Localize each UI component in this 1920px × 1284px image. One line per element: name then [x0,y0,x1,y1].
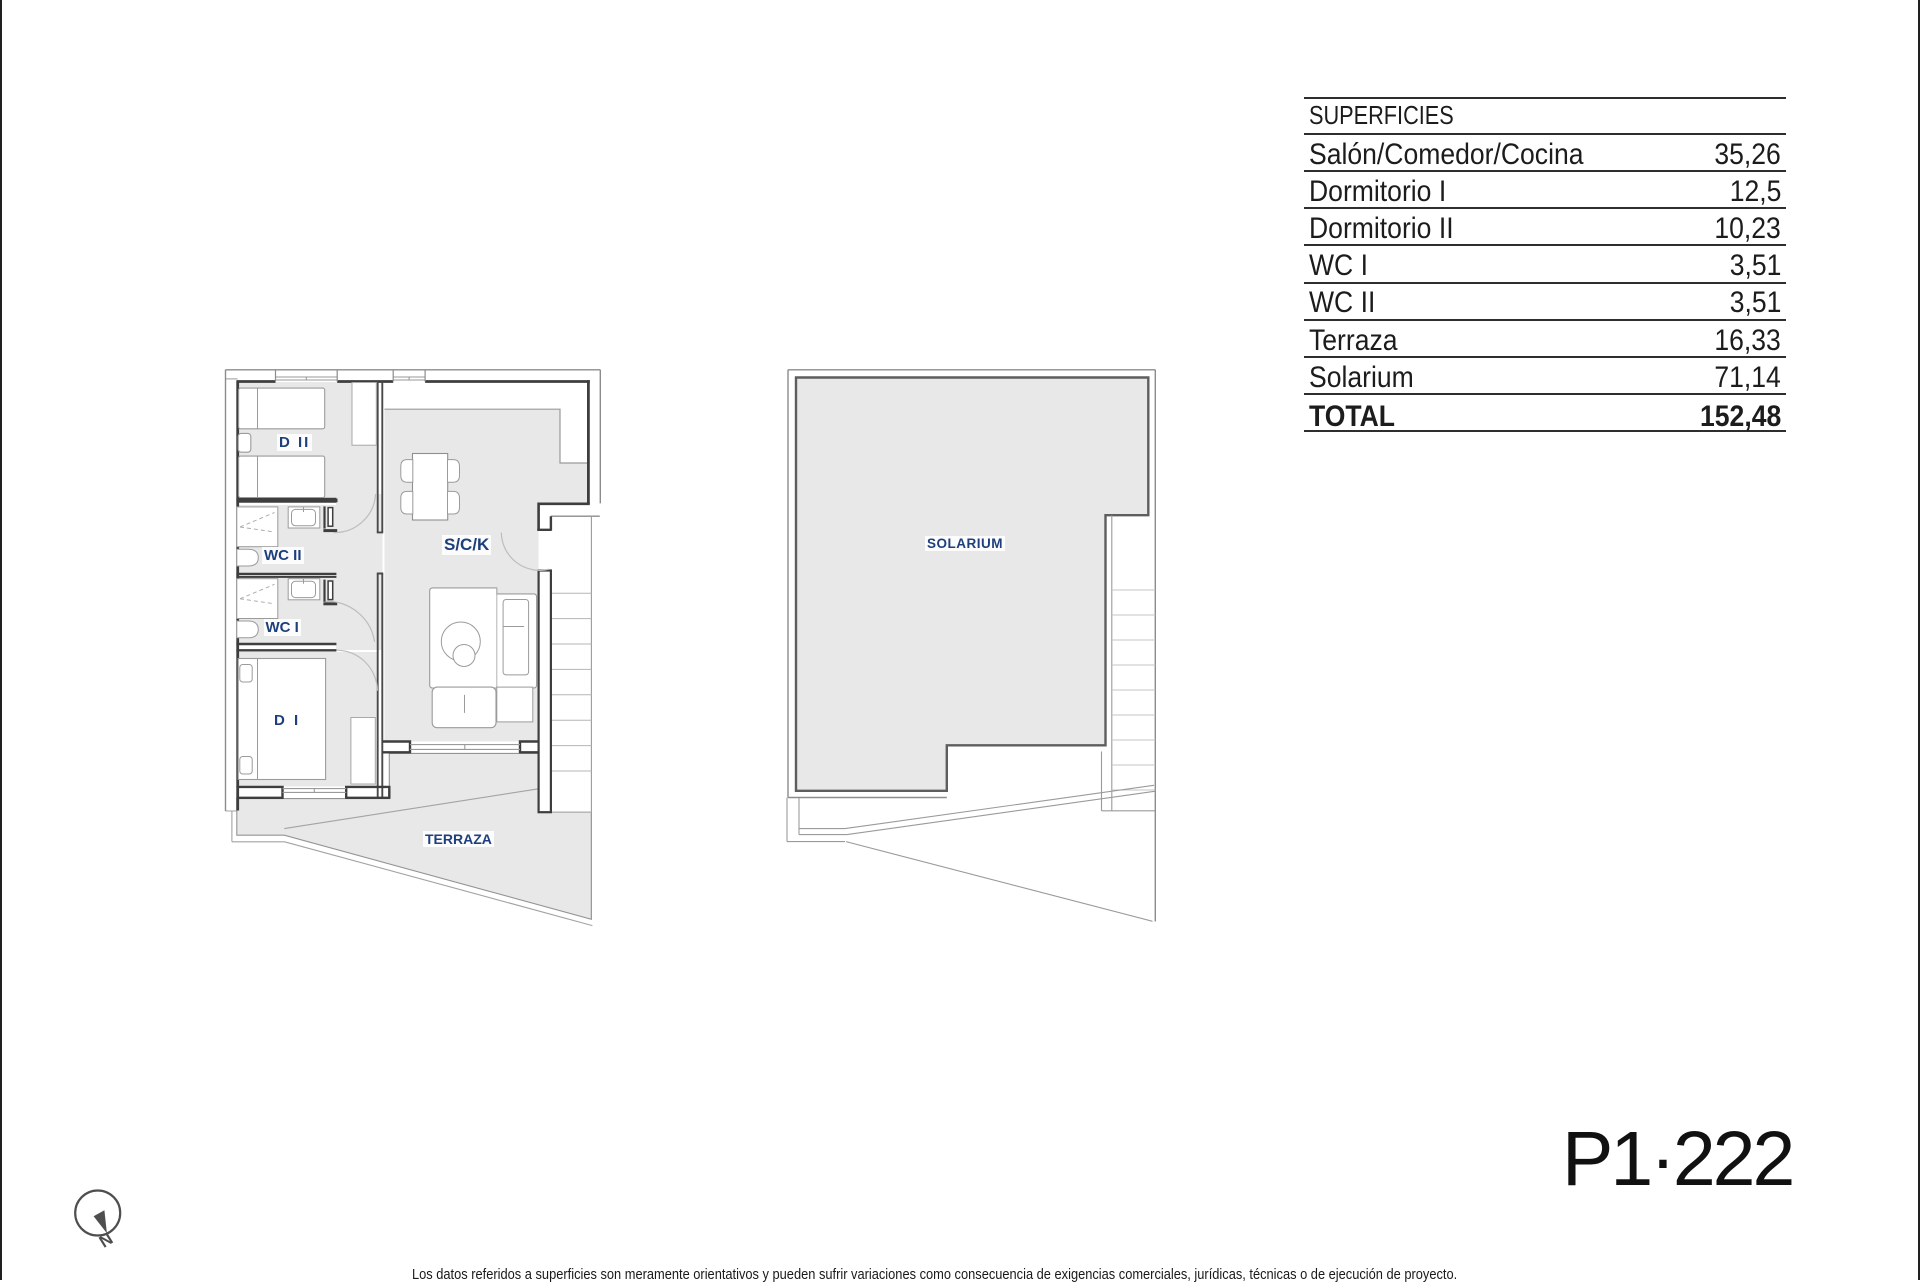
svg-text:N: N [96,1229,116,1252]
